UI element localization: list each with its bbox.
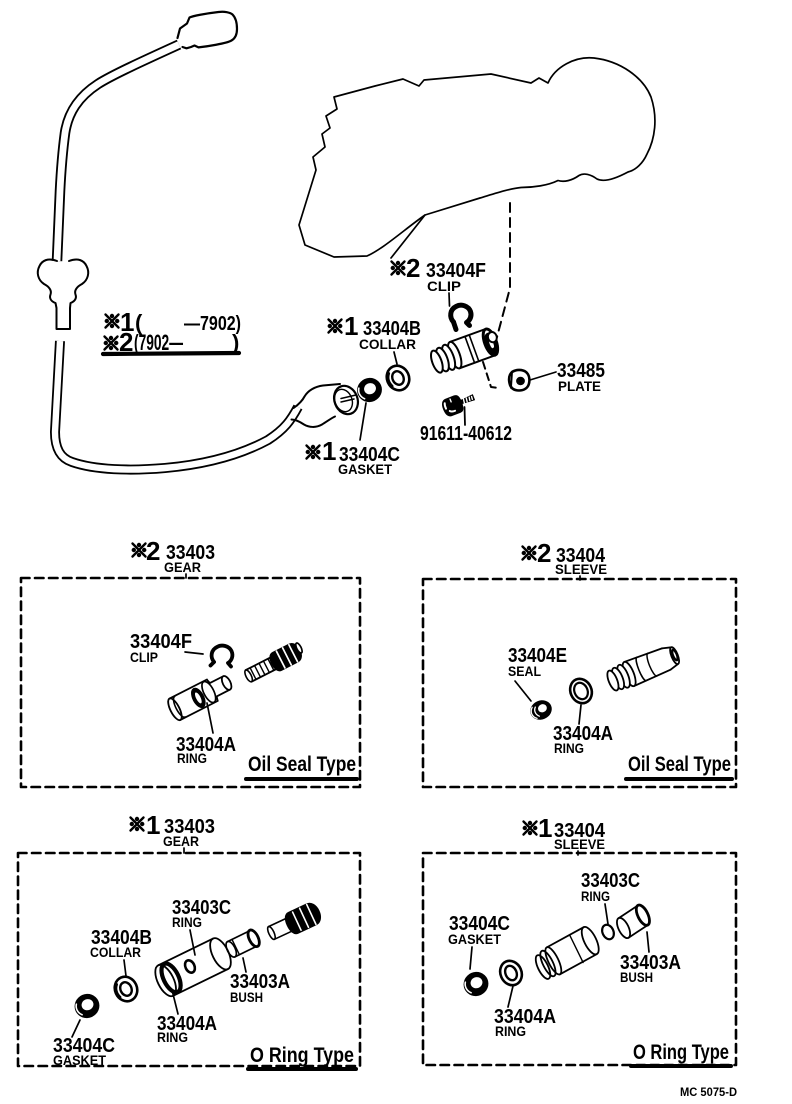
svg-text:CLIP: CLIP xyxy=(427,278,461,294)
svg-text:SLEEVE: SLEEVE xyxy=(554,836,605,852)
svg-text:1: 1 xyxy=(344,311,358,341)
svg-text:COLLAR: COLLAR xyxy=(90,944,141,960)
svg-text:RING: RING xyxy=(177,750,207,766)
svg-text:2: 2 xyxy=(146,536,160,566)
svg-text:(7902—: (7902— xyxy=(134,330,183,355)
svg-text:BUSH: BUSH xyxy=(230,989,263,1005)
svg-text:RING: RING xyxy=(581,888,610,904)
svg-text:2: 2 xyxy=(537,538,551,568)
svg-text:O Ring Type: O Ring Type xyxy=(633,1041,729,1064)
svg-text:GEAR: GEAR xyxy=(163,833,199,849)
svg-text:Oil Seal Type: Oil Seal Type xyxy=(248,753,356,776)
svg-text:CLIP: CLIP xyxy=(130,649,158,665)
svg-text:O Ring Type: O Ring Type xyxy=(250,1044,354,1067)
svg-text:GASKET: GASKET xyxy=(53,1052,106,1068)
svg-text:GASKET: GASKET xyxy=(448,931,501,947)
svg-text:1: 1 xyxy=(322,436,336,466)
svg-text:SLEEVE: SLEEVE xyxy=(555,561,607,577)
svg-text:1: 1 xyxy=(146,810,160,840)
svg-text:RING: RING xyxy=(554,740,584,756)
svg-text:RING: RING xyxy=(172,914,202,930)
svg-text:SEAL: SEAL xyxy=(508,663,541,679)
svg-text:2: 2 xyxy=(406,253,420,283)
svg-text:1: 1 xyxy=(538,813,552,843)
svg-text:GASKET: GASKET xyxy=(338,461,392,477)
svg-text:RING: RING xyxy=(157,1029,188,1045)
svg-text:GEAR: GEAR xyxy=(164,559,201,575)
svg-text:PLATE: PLATE xyxy=(558,378,601,394)
svg-text:COLLAR: COLLAR xyxy=(359,336,416,352)
svg-text:91611-40612: 91611-40612 xyxy=(420,423,512,445)
svg-text:MC 5075-D: MC 5075-D xyxy=(680,1085,737,1099)
svg-text:RING: RING xyxy=(495,1023,526,1039)
svg-text:Oil Seal Type: Oil Seal Type xyxy=(628,753,731,776)
svg-text:BUSH: BUSH xyxy=(620,969,653,985)
